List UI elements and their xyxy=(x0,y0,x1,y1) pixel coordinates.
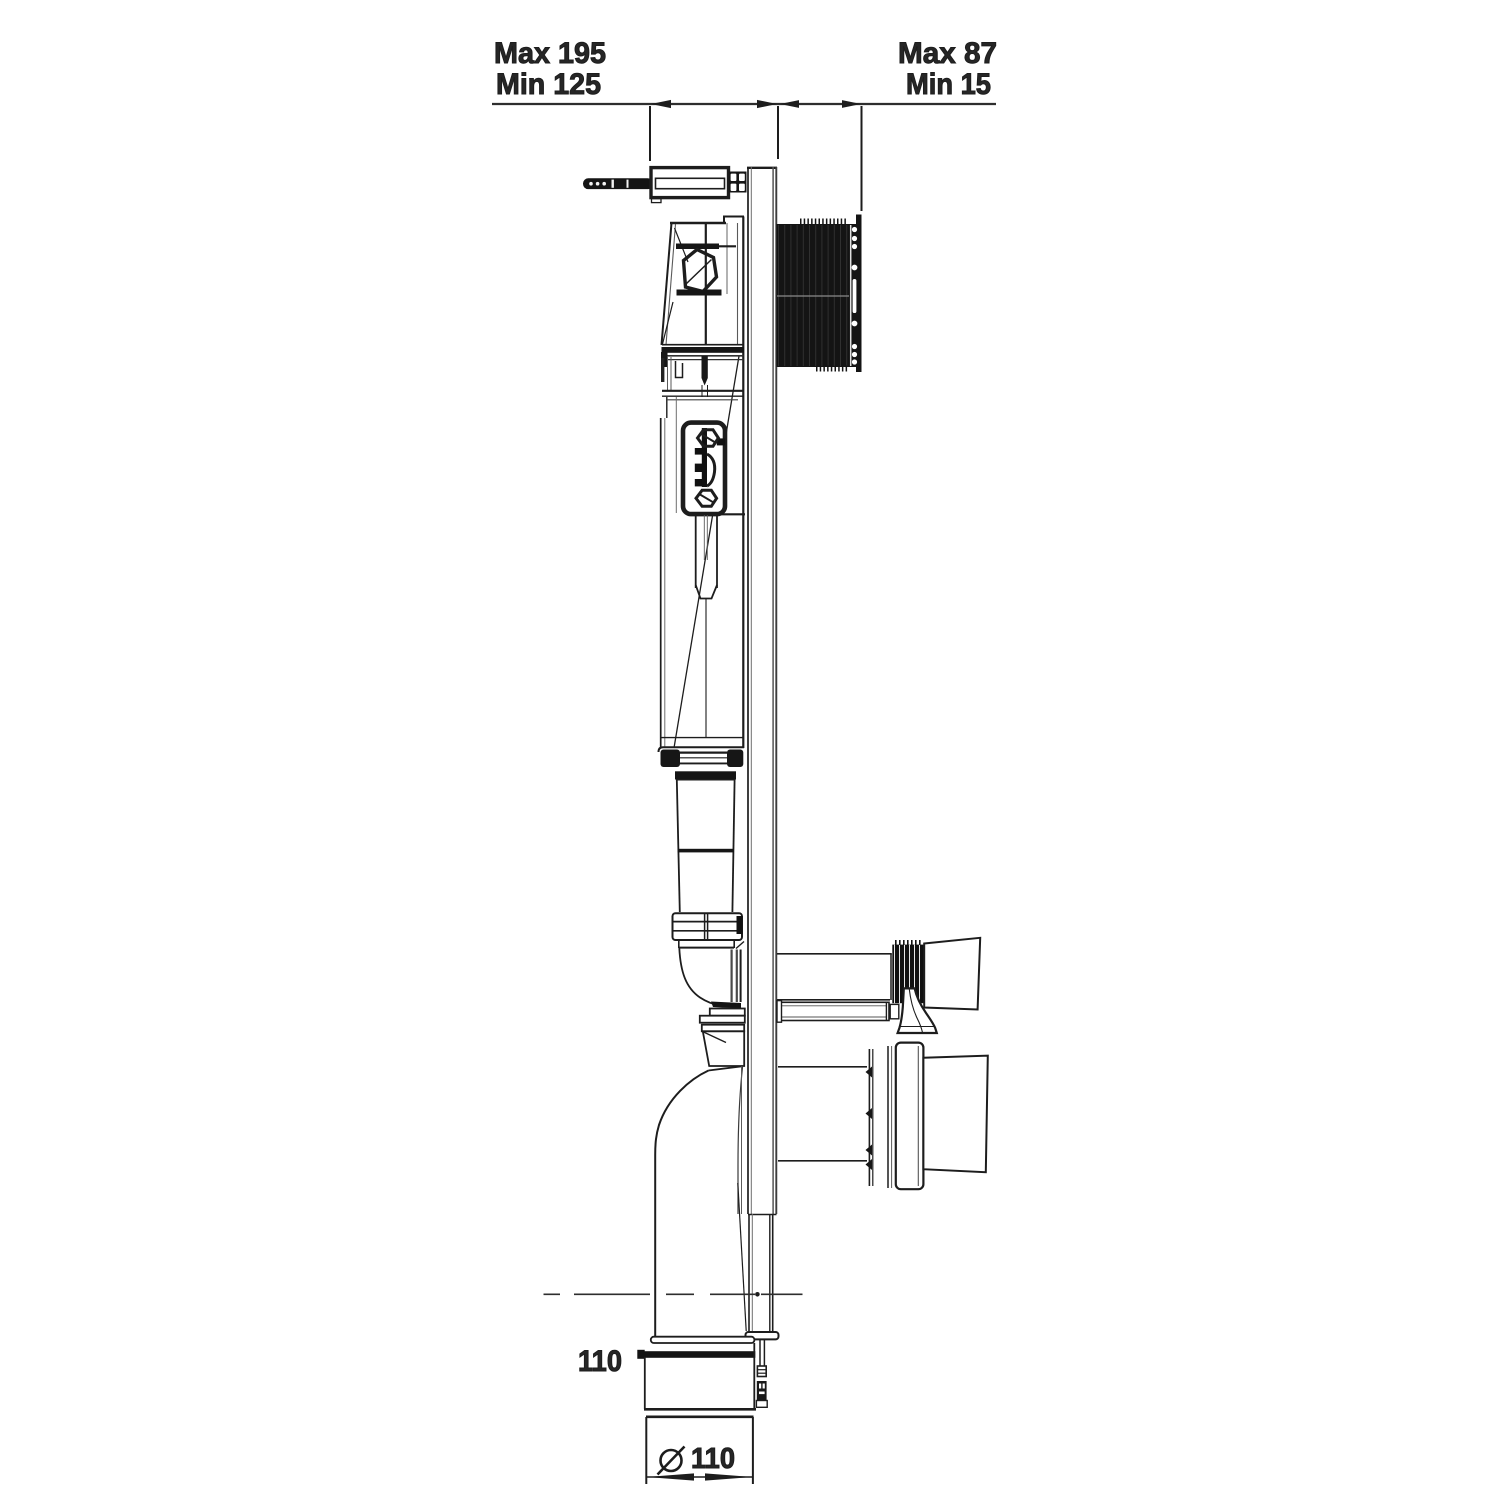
svg-text:Min 15: Min 15 xyxy=(906,68,991,101)
svg-text:Max 87: Max 87 xyxy=(898,37,997,70)
svg-text:110: 110 xyxy=(691,1443,735,1475)
svg-text:Max 195: Max 195 xyxy=(494,37,606,70)
svg-text:110: 110 xyxy=(578,1345,622,1378)
svg-text:Min 125: Min 125 xyxy=(496,68,601,101)
